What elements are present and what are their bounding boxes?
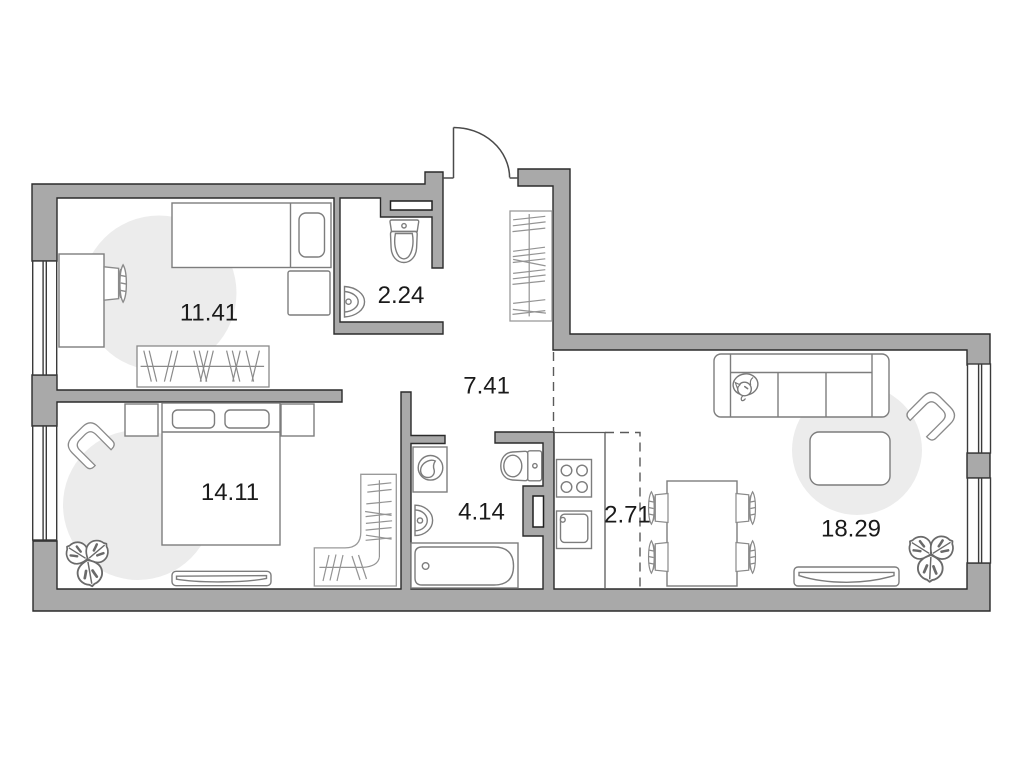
svg-text:2.24: 2.24 [378,282,425,309]
svg-text:18.29: 18.29 [821,516,881,543]
svg-text:14.11: 14.11 [201,479,259,506]
svg-text:2.71: 2.71 [604,502,651,529]
svg-text:11.41: 11.41 [180,300,238,327]
svg-text:4.14: 4.14 [458,499,505,526]
svg-text:7.41: 7.41 [463,373,510,400]
